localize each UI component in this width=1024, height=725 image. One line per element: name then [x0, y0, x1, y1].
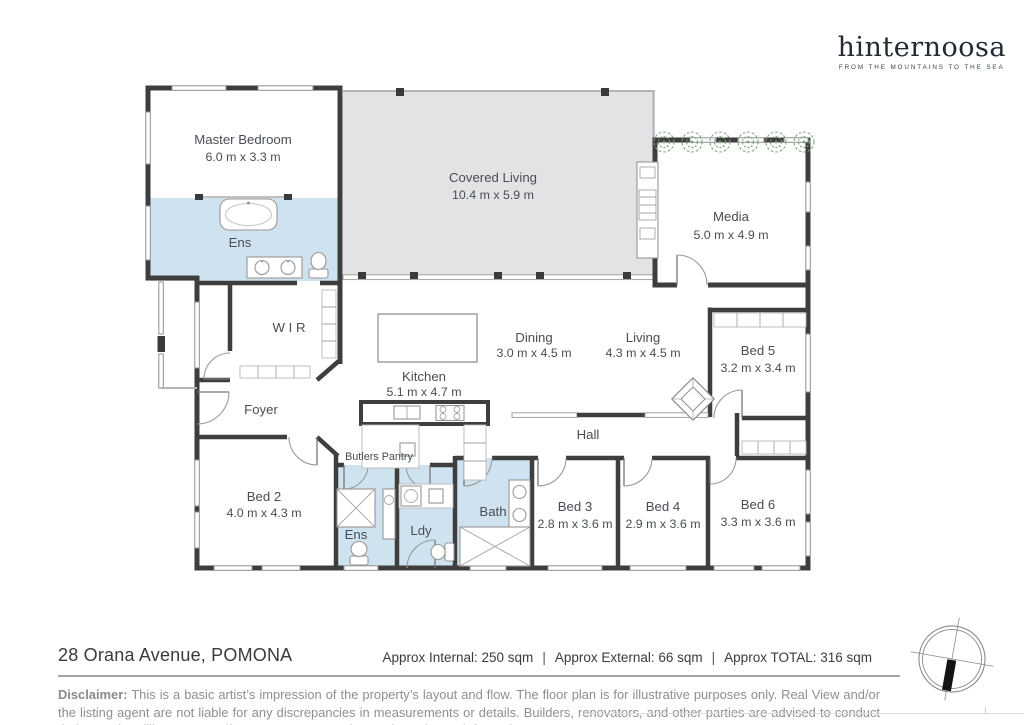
floor-plan-drawing: Master Bedroom 6.0 m x 3.3 m Ens Covered… [0, 0, 1024, 725]
stat-internal: Approx Internal: 250 sqm [382, 650, 533, 665]
room-label-bed2: Bed 2 [247, 489, 281, 504]
toilet-icon-wc [431, 543, 454, 561]
room-label-foyer: Foyer [244, 402, 278, 417]
disclaimer-label: Disclaimer: [58, 687, 128, 702]
room-label-media: Media [713, 209, 750, 224]
room-dims-media: 5.0 m x 4.9 m [693, 228, 768, 242]
robe-bed5 [714, 313, 806, 327]
page-edge-tick [985, 707, 986, 714]
room-label-covered: Covered Living [449, 170, 537, 185]
porch-glazing [158, 282, 198, 388]
room-label-master: Master Bedroom [194, 132, 291, 147]
kitchen-island [378, 314, 477, 362]
room-label-ens1: Ens [229, 235, 252, 250]
room-dims-bed3: 2.8 m x 3.6 m [537, 517, 612, 531]
property-address: 28 Orana Avenue, POMONA [58, 645, 292, 666]
stat-separator: | [542, 650, 546, 665]
room-label-dining: Dining [515, 330, 552, 345]
laundry-appliances [399, 484, 453, 508]
floor-plan-page: hinternoosa FROM THE MOUNTAINS TO THE SE… [0, 0, 1024, 725]
double-vanity-icon [247, 257, 302, 278]
stat-total: Approx TOTAL: 316 sqm [724, 650, 872, 665]
toilet-icon [309, 253, 328, 279]
room-label-wir: W I R [273, 320, 306, 335]
page-edge-line [583, 713, 1024, 714]
outdoor-kitchen [637, 162, 658, 258]
room-dims-bed5: 3.2 m x 3.4 m [720, 361, 795, 375]
room-label-bed3: Bed 3 [558, 499, 592, 514]
room-dims-living: 4.3 m x 4.5 m [605, 346, 680, 360]
room-label-bed4: Bed 4 [646, 499, 680, 514]
vanity-icon-ens2 [383, 489, 395, 539]
toilet-icon-ens2 [350, 542, 368, 566]
room-label-kitchen: Kitchen [402, 369, 446, 384]
room-dims-bed4: 2.9 m x 3.6 m [625, 517, 700, 531]
room-label-ens2: Ens [345, 527, 368, 542]
disclaimer-text: This is a basic artist’s impression of t… [58, 687, 880, 725]
room-label-bed5: Bed 5 [741, 343, 775, 358]
room-label-bed6: Bed 6 [741, 497, 775, 512]
shower-icon-ens2 [337, 489, 375, 527]
room-dims-dining: 3.0 m x 4.5 m [496, 346, 571, 360]
kitchen-bench [361, 402, 488, 424]
robe-bed6 [742, 441, 806, 454]
area-stats: Approx Internal: 250 sqm|Approx External… [382, 650, 872, 665]
room-label-bath: Bath [479, 504, 506, 519]
compass-icon [903, 610, 1000, 707]
room-label-ldy: Ldy [410, 523, 432, 538]
disclaimer: Disclaimer: This is a basic artist’s imp… [58, 686, 880, 725]
room-dims-master: 6.0 m x 3.3 m [205, 150, 280, 164]
stat-separator: | [712, 650, 716, 665]
footer-divider [58, 675, 900, 677]
room-label-hall: Hall [577, 427, 600, 442]
stat-external: Approx External: 66 sqm [555, 650, 703, 665]
room-dims-bed6: 3.3 m x 3.6 m [720, 515, 795, 529]
room-dims-covered: 10.4 m x 5.9 m [452, 188, 534, 202]
room-label-butlers: Butlers Pantry [345, 451, 413, 463]
room-label-living: Living [626, 330, 660, 345]
room-dims-kitchen: 5.1 m x 4.7 m [386, 385, 461, 399]
room-dims-bed2: 4.0 m x 4.3 m [226, 506, 301, 520]
